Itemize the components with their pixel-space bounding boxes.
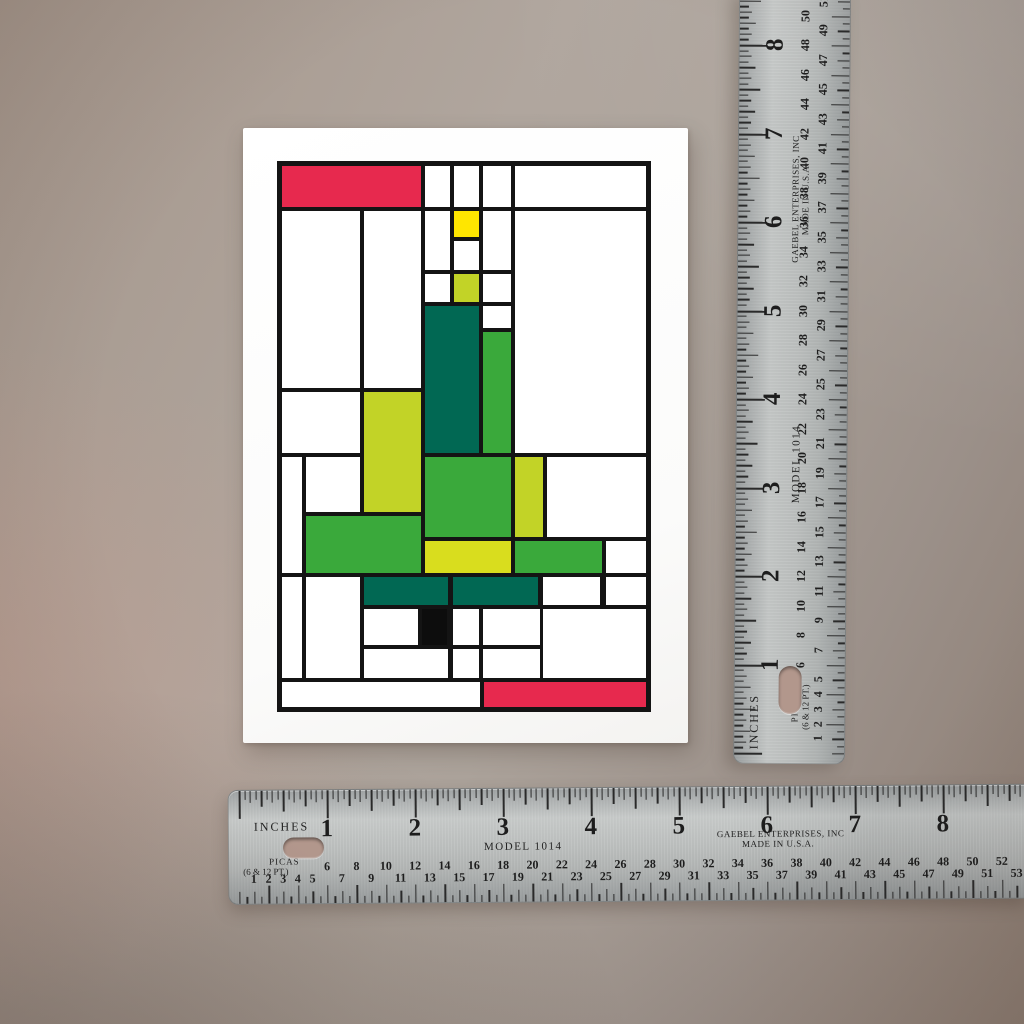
pica-number: 24 [795,393,810,405]
pica-tick [591,883,592,901]
design-cell [425,541,511,573]
inch-tick [739,155,755,157]
inch-tick [737,360,746,361]
inch-tick [305,790,307,806]
design-cell [364,211,421,388]
inch-tick [738,293,747,294]
inch-tick [736,465,752,467]
design-cell [282,166,421,207]
pica-tick [518,890,519,902]
pica-tick [921,892,922,899]
pica-number: 6 [793,662,808,668]
pica-tick [437,895,438,902]
design-cell [483,274,511,302]
pica-tick [885,881,886,899]
inch-tick [948,785,949,794]
design-cell [543,609,646,678]
inch-tick [767,787,769,815]
pica-tick [452,895,453,902]
pica-tick [832,45,850,46]
pica-tick [828,547,846,548]
inch-tick [525,789,527,805]
pica-tick [840,436,847,437]
photo-background: Merry Christmas INCHES PICAS (6 & 12 PT.… [0,0,1024,1024]
inch-tick [437,789,439,805]
pica-tick [833,650,845,651]
pica-tick [828,488,846,489]
inch-tick [349,790,351,806]
pica-tick [834,503,846,504]
inch-tick [277,791,278,800]
inch-tick [739,116,748,117]
pica-tick [833,591,845,592]
pica-tick [841,245,848,246]
design-cell [425,457,511,537]
pica-tick [842,82,849,83]
inch-tick [739,111,755,113]
pica-tick [474,884,475,902]
pica-tick [694,888,695,900]
design-cell [515,166,646,207]
inch-tick [739,161,748,162]
pica-number: 53 [1006,866,1024,881]
inch-tick [739,78,751,79]
inch-tick [541,789,542,798]
design-cell [483,332,511,453]
inch-tick [735,675,747,676]
pica-number: 46 [798,69,813,81]
inch-tick [827,786,828,795]
inch-tick [822,786,823,798]
inch-tick [497,789,498,798]
inch-tick [736,509,752,511]
inch-tick [800,786,801,798]
inch-tick [735,697,747,698]
pica-tick [371,891,372,903]
inch-tick [739,72,748,73]
inch-tick [283,791,285,812]
pica-tick [842,112,849,113]
pica-tick [829,429,847,430]
inch-tick [740,56,752,57]
inch-tick [761,787,762,796]
pica-tick [838,584,845,585]
pica-number: 5 [811,676,826,682]
pica-tick [829,370,847,371]
pica-tick [841,887,842,899]
design-cell [364,577,448,605]
pica-tick [827,694,845,695]
pica-number: 47 [816,54,831,66]
inch-tick [735,647,744,648]
inch-tick [805,786,806,795]
pica-tick [540,895,541,902]
inch-tick [738,266,759,268]
inch-number: 7 [761,127,789,140]
pica-tick [261,897,262,904]
inch-tick [569,788,571,804]
inch-tick [596,788,597,797]
pica-tick [621,883,622,901]
inch-tick [734,787,735,799]
inch-tick [736,537,745,538]
ruler-v-slot-hole [778,666,801,714]
pica-tick [833,621,845,622]
inch-tick [740,34,752,35]
pica-tick [393,896,394,903]
pica-tick [503,884,504,902]
pica-tick [848,892,849,899]
inch-tick [552,788,553,797]
pica-tick [657,894,658,901]
pica-tick [459,890,460,902]
inch-tick [354,790,355,799]
inch-tick [738,282,747,283]
inch-tick [736,515,745,516]
pica-tick [841,289,848,290]
ruler-v-picas-sublabel: (6 & 12 PT.) [800,684,810,729]
pica-tick [836,296,848,297]
design-cell [515,211,646,453]
design-cell [282,457,302,573]
pica-tick [599,894,600,901]
inch-tick [343,790,344,799]
pica-number: 51 [816,0,831,7]
pica-tick [842,141,849,142]
inch-tick [899,786,901,807]
inch-number: 2 [757,569,785,582]
inch-tick [737,415,746,416]
inch-tick [701,787,703,803]
inch-tick [266,791,267,800]
inch-tick [737,338,746,339]
pica-number: 33 [814,260,829,272]
pica-tick [269,886,270,904]
pica-tick [313,891,314,903]
inch-tick [690,787,691,799]
inch-tick [888,786,889,798]
ruler-h-model-label: MODEL 1014 [484,840,563,853]
pica-tick [239,892,240,904]
pica-tick [775,893,776,900]
inch-tick [734,753,762,755]
design-cell [543,577,600,605]
pica-tick [832,753,844,754]
inch-tick [750,787,751,796]
pica-tick [828,458,846,459]
pica-tick [291,896,292,903]
inch-tick [794,787,795,796]
pica-tick [863,892,864,899]
inch-tick [926,786,927,795]
inch-tick [481,789,483,805]
pica-tick [364,896,365,903]
inch-tick [736,459,745,460]
pica-tick [349,896,350,903]
inch-tick [475,789,476,798]
pica-tick [841,304,848,305]
inch-tick [712,787,713,799]
pica-tick [841,230,848,231]
inch-tick [735,581,744,582]
pica-tick [840,363,847,364]
pica-tick [832,739,844,740]
pica-tick [731,893,732,900]
design-cell [364,609,418,645]
inch-tick [877,786,879,802]
inch-tick [833,786,835,802]
pica-number: 43 [816,113,831,125]
inch-tick [393,790,395,806]
pica-tick [555,894,556,901]
inch-tick [739,94,748,95]
pica-number: 22 [795,423,810,435]
pica-tick [804,892,805,899]
pica-tick [842,68,849,69]
pica-tick [830,252,848,253]
pica-tick [298,885,299,903]
pica-tick [830,281,848,282]
pica-number: 31 [814,290,829,302]
pica-tick [827,576,845,577]
inch-tick [404,790,405,802]
inch-tick [738,316,747,317]
design-cell [483,609,540,645]
pica-number: 4 [811,691,826,697]
inch-tick [739,122,751,123]
inch-number: 7 [840,811,870,839]
pica-tick [837,119,849,120]
inch-tick [736,454,748,455]
inch-tick [244,791,245,800]
pica-tick [830,311,848,312]
pica-tick [839,481,846,482]
inch-tick [261,791,263,807]
pica-tick [841,215,848,216]
pica-tick [687,893,688,900]
pica-tick [834,532,846,533]
design-cell [453,609,479,645]
inch-tick [959,785,960,794]
pica-tick [831,104,849,105]
inch-tick [737,410,749,411]
inch-tick [735,659,744,660]
inch-tick [737,382,746,383]
pica-tick [829,340,847,341]
pica-number: 36 [797,216,812,228]
pica-tick [650,883,651,901]
design-cell [606,541,646,573]
inch-tick [618,788,619,797]
pica-tick [357,885,358,903]
inch-tick [893,786,894,795]
pica-tick [899,887,900,899]
design-cell [453,649,479,678]
inch-tick [635,788,637,809]
inch-number: 8 [762,39,790,52]
pica-number: 21 [813,437,828,449]
inch-tick [860,786,861,795]
pica-number: 8 [793,632,808,638]
inch-tick [736,448,745,449]
pica-tick [841,274,848,275]
pica-number: 26 [796,364,811,376]
pica-tick [445,884,446,902]
inch-tick [738,260,747,261]
pica-tick [481,895,482,902]
pica-tick [827,665,845,666]
pica-tick [826,724,844,725]
inch-tick [738,244,754,246]
pica-number: 29 [814,319,829,331]
design-cell [306,457,360,512]
inch-tick [431,789,432,798]
inch-tick [728,787,729,796]
inch-tick [398,790,399,799]
inch-tick [508,789,509,798]
pica-tick [679,882,680,900]
inch-tick [738,255,750,256]
pica-tick [870,887,871,899]
inch-tick [737,349,746,350]
inch-tick [613,788,615,804]
inch-number: 1 [312,815,342,843]
pica-tick [835,444,847,445]
pica-tick [831,75,849,76]
design-cell [483,166,511,207]
inch-tick [772,787,773,796]
inch-tick [816,786,817,795]
pica-tick [247,897,248,904]
pica-tick [1017,886,1018,898]
inch-tick [739,89,760,91]
design-cell [515,541,602,573]
pica-tick [838,672,845,673]
pica-number: 28 [796,334,811,346]
inch-tick [1020,785,1021,797]
inch-tick [737,321,749,322]
design-cell [425,306,479,453]
inch-tick [937,785,938,794]
design-cell [483,649,540,678]
pica-tick [533,884,534,902]
inch-tick [327,790,329,818]
inch-tick [1009,785,1011,801]
inch-tick [735,653,747,654]
pica-tick [843,53,850,54]
design-cell [364,649,448,678]
inch-tick [706,787,707,796]
inch-tick [736,526,745,527]
inch-tick [737,343,749,344]
pica-tick [973,880,974,898]
inch-tick [448,789,449,801]
inch-tick [740,11,752,12]
inch-tick [740,50,749,51]
inch-number: 6 [752,812,782,840]
pica-tick [826,881,827,899]
inch-tick [737,388,749,389]
pica-tick [643,894,644,901]
inch-tick [738,271,747,272]
pica-tick [837,717,844,718]
inch-tick [738,277,750,278]
inch-tick [574,788,575,797]
pica-number: 30 [796,305,811,317]
pica-tick [335,896,336,903]
inch-tick [558,788,559,800]
inch-tick [415,790,417,818]
inch-tick [740,39,749,40]
inch-tick [739,183,748,184]
inch-tick [288,791,289,800]
inch-tick [976,785,977,797]
pica-tick [613,894,614,901]
pica-tick [833,892,834,899]
pica-tick [386,885,387,903]
pica-number: 19 [813,467,828,479]
pica-tick [738,882,739,900]
inch-tick [954,785,955,797]
design-cell [282,682,480,707]
inch-tick [738,205,747,206]
pica-tick [547,889,548,901]
inch-tick [740,28,749,29]
inch-tick [734,736,743,737]
inch-tick [736,493,745,494]
pica-number: 48 [798,39,813,51]
pica-tick [401,891,402,903]
pica-tick [838,658,845,659]
ruler-h-brand-line2: MADE IN U.S.A. [742,838,814,849]
inch-tick [735,636,744,637]
inch-tick [591,788,593,816]
inch-tick [272,791,273,803]
inch-number: 5 [760,304,788,317]
pica-number: 44 [798,98,813,110]
pica-tick [839,554,846,555]
pica-tick [467,895,468,902]
pica-tick [709,882,710,900]
design-cell [425,166,450,207]
inch-tick [736,476,748,477]
inch-tick [739,166,751,167]
inch-tick [338,790,339,802]
pica-tick [665,889,666,901]
inch-tick [740,0,761,2]
inch-tick [332,790,333,799]
pica-tick [838,613,845,614]
inch-tick [736,548,745,549]
inch-tick [310,790,311,799]
inch-tick [736,542,748,543]
inch-tick [970,785,971,794]
inch-tick [737,365,749,366]
pica-tick [840,333,847,334]
inch-tick [321,790,322,799]
inch-tick [738,194,747,195]
inch-tick [739,83,748,84]
inch-tick [844,786,845,798]
pica-tick [838,599,845,600]
pica-number: 9 [812,617,827,623]
pica-tick [841,259,848,260]
pica-tick [839,569,846,570]
vertical-ruler: GAEBEL ENTERPRISES, INC MADE IN U.S.A. M… [733,0,851,764]
inch-number: 1 [757,658,785,671]
pica-tick [430,890,431,902]
design-cell [282,392,360,453]
